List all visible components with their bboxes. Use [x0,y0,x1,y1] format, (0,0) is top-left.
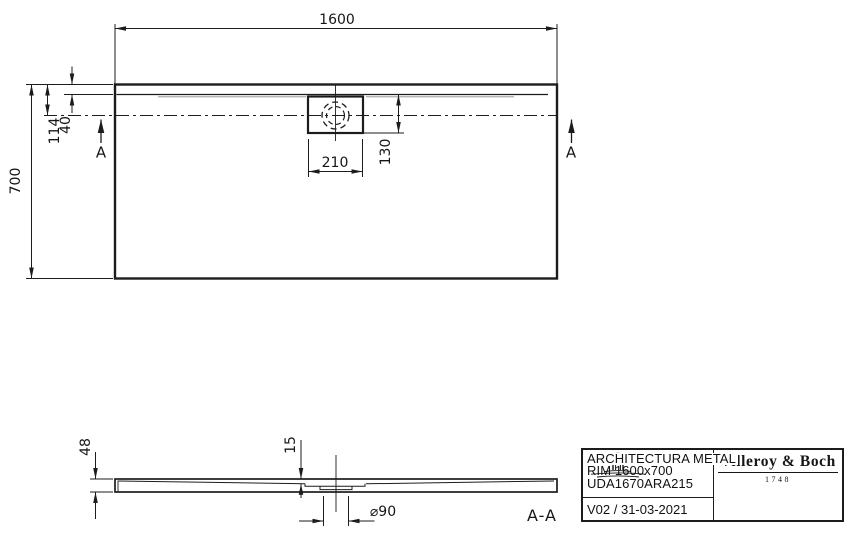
article-number: UDA1670ARA215 [587,478,713,490]
title-block-info-column: ARCHITECTURA METAL RIM 1600x700 UDA1670A… [583,450,714,520]
dim-210-label: 210 [322,156,349,170]
technical-drawing-sheet: 1600 700 114 40 210 130 A A 48 15 ⌀90 A-… [0,0,858,540]
drain-recess [305,484,365,487]
dim-drain-diameter [299,496,375,526]
version-date: V02 / 31-03-2021 [583,497,713,520]
top-view [26,24,572,279]
dim-1600-label: 1600 [319,13,355,27]
section-view-label: A-A [527,508,557,524]
side-view [90,440,557,526]
dim-700 [26,85,113,279]
dim-drain-diameter-label: ⌀90 [370,505,396,519]
dim-15-label: 15 [284,436,298,454]
dim-48-label: 48 [79,438,93,456]
title-block: ARCHITECTURA METAL RIM 1600x700 UDA1670A… [581,448,844,522]
dim-130-label: 130 [379,139,393,166]
tray-outline [115,85,557,279]
dim-48 [90,452,113,519]
section-marker-left-label: A [96,146,106,161]
section-marker-right-label: A [566,146,576,161]
dim-1600 [115,24,557,84]
dim-40-label: 40 [59,116,73,134]
dim-40 [64,67,113,114]
dim-700-label: 700 [9,168,23,195]
product-name: ARCHITECTURA METAL [587,453,738,465]
section-arrows [101,120,572,144]
brand-year: 1748 [765,475,791,484]
